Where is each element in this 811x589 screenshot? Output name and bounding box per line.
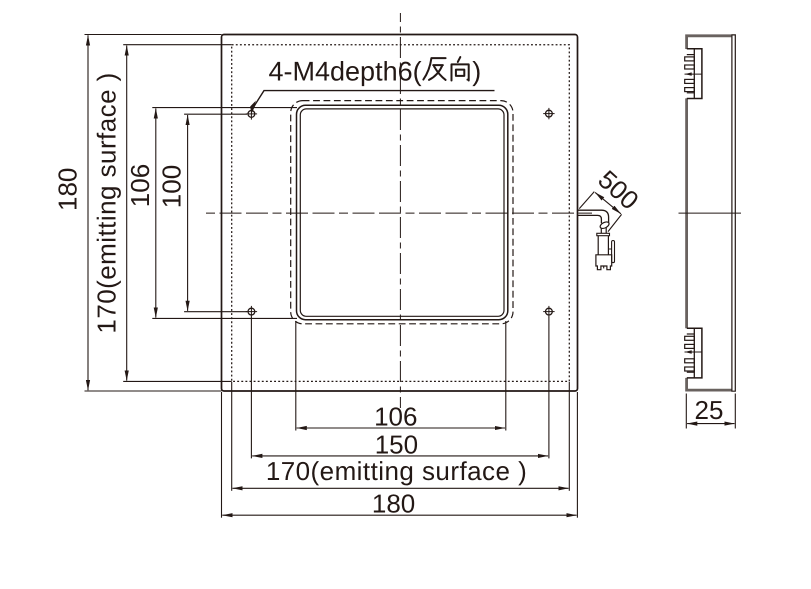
svg-text:106: 106: [125, 164, 155, 207]
svg-text:106: 106: [374, 402, 417, 432]
svg-text:180: 180: [53, 168, 83, 211]
svg-text:170(emitting surface ): 170(emitting surface ): [266, 456, 527, 486]
svg-text:25: 25: [695, 395, 724, 425]
svg-text:500: 500: [592, 164, 644, 215]
svg-text:): ): [472, 56, 481, 86]
svg-text:170(emitting surface ): 170(emitting surface ): [92, 72, 122, 333]
svg-text:100: 100: [156, 165, 186, 208]
svg-text:150: 150: [375, 429, 418, 459]
svg-text:4-M4depth6(: 4-M4depth6(: [269, 56, 422, 86]
svg-text:180: 180: [372, 489, 415, 519]
